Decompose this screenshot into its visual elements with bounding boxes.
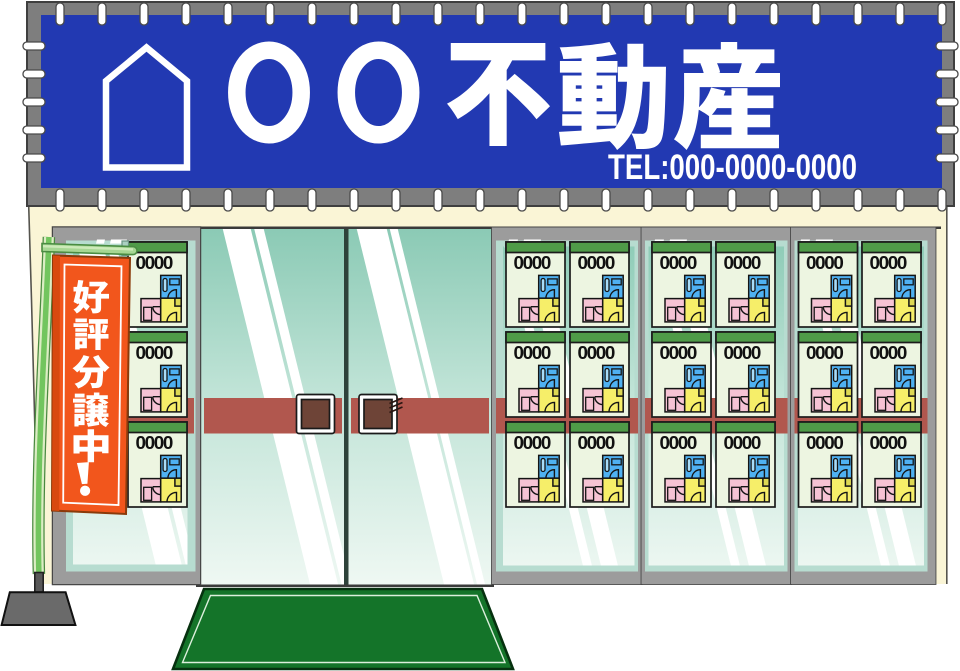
svg-text:TEL:000-0000-0000: TEL:000-0000-0000 [608, 148, 857, 187]
